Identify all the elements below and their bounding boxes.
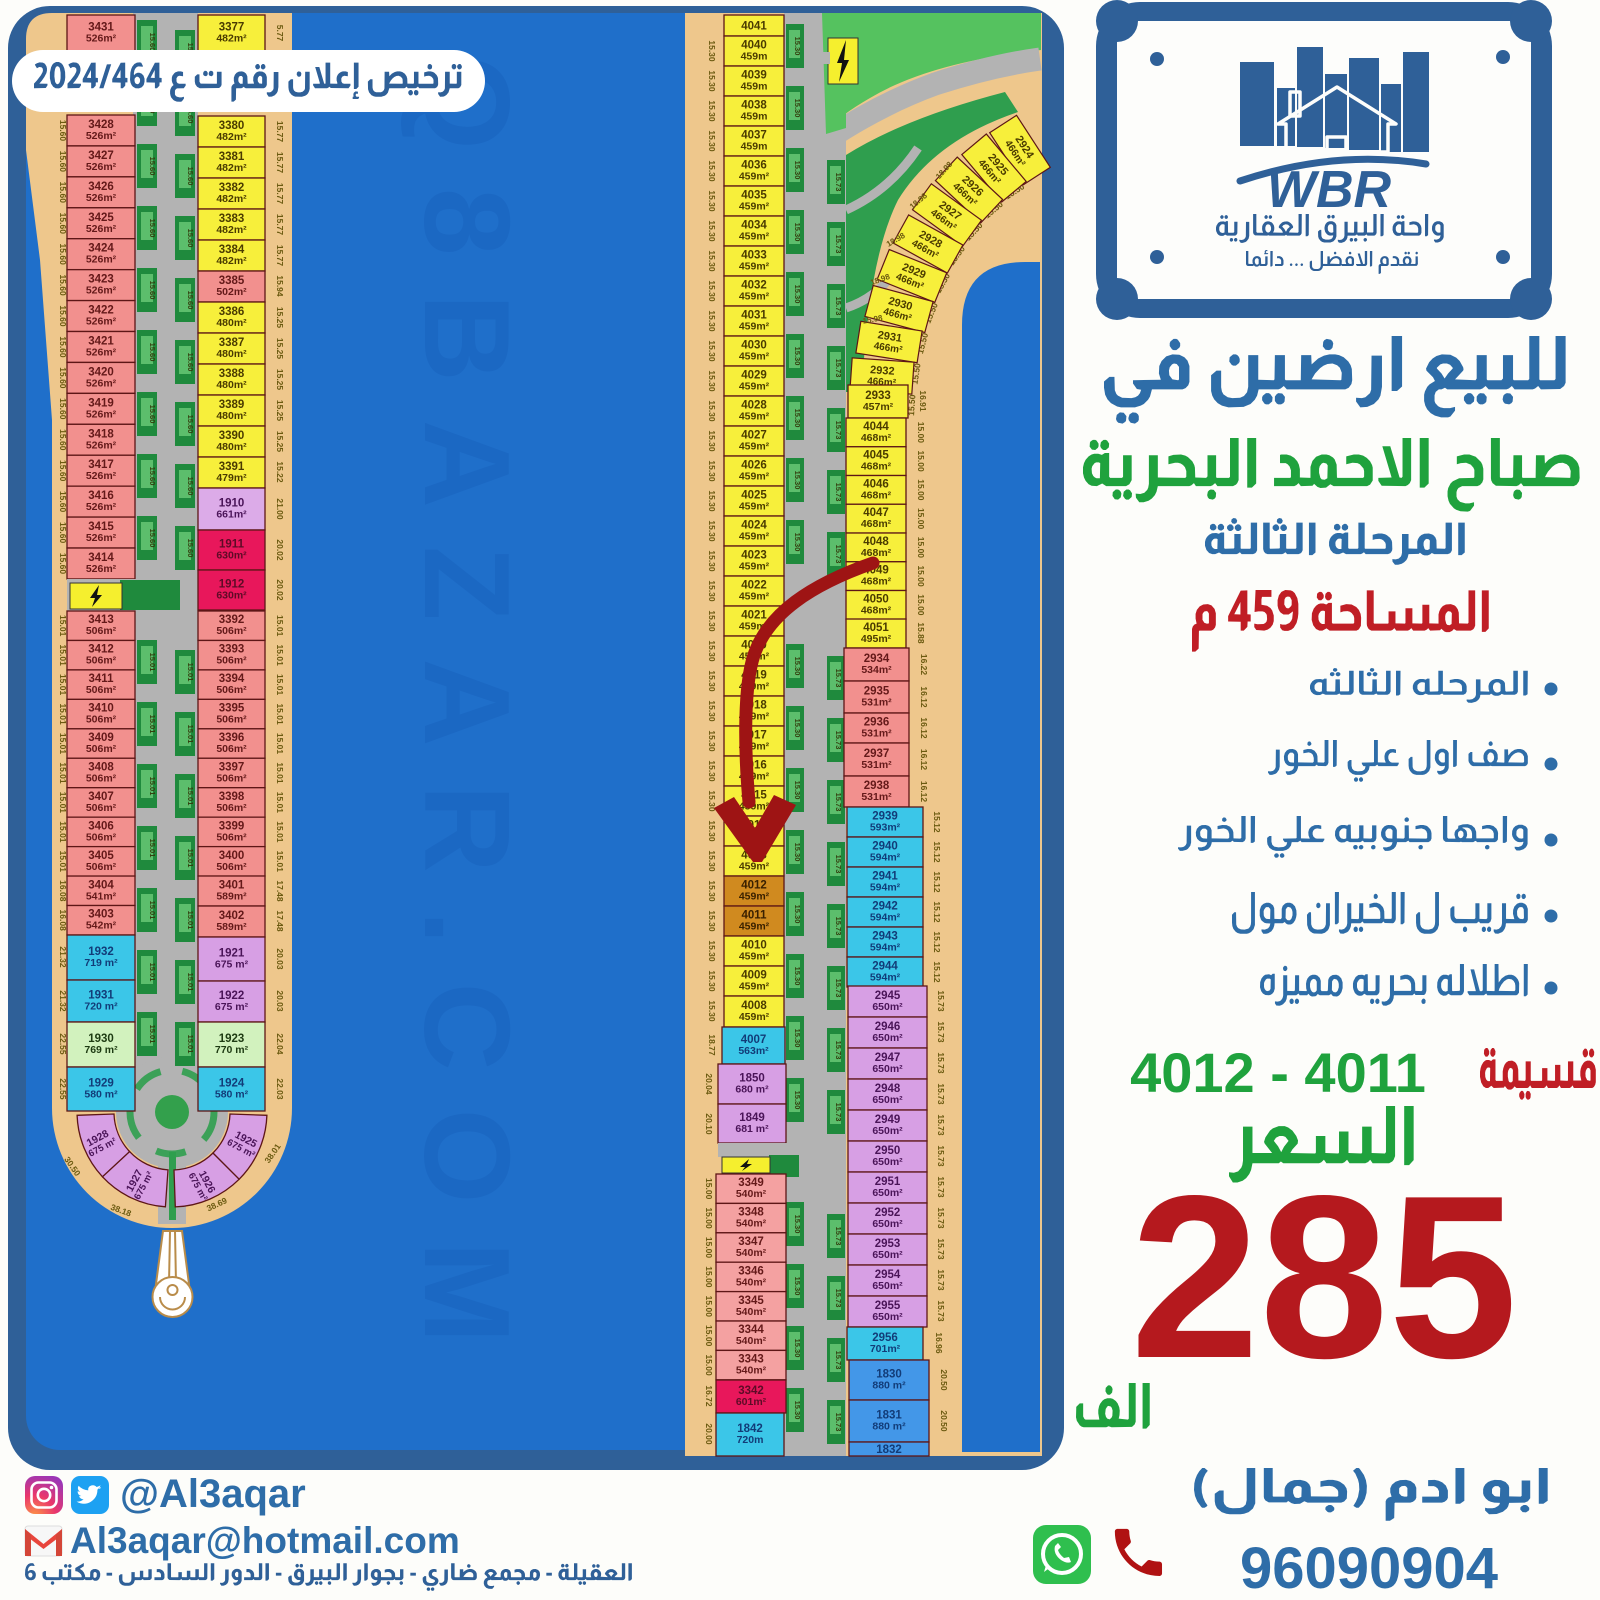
svg-text:601m²: 601m² xyxy=(736,1396,767,1408)
svg-text:15.73: 15.73 xyxy=(834,1227,843,1246)
svg-text:506m²: 506m² xyxy=(86,714,117,726)
svg-text:15.30: 15.30 xyxy=(793,905,802,924)
svg-text:15.01: 15.01 xyxy=(148,777,157,796)
svg-text:580 m²: 580 m² xyxy=(84,1089,118,1101)
svg-text:15.00: 15.00 xyxy=(704,1354,714,1376)
svg-text:4041: 4041 xyxy=(741,21,767,33)
svg-text:770 m²: 770 m² xyxy=(215,1044,249,1056)
svg-text:650m²: 650m² xyxy=(872,1001,903,1013)
svg-text:459m²: 459m² xyxy=(739,171,770,183)
svg-text:15.30: 15.30 xyxy=(707,1000,717,1022)
svg-text:540m²: 540m² xyxy=(736,1276,767,1288)
svg-text:15.30: 15.30 xyxy=(707,730,717,752)
svg-text:701m²: 701m² xyxy=(870,1343,901,1355)
svg-text:650m²: 650m² xyxy=(872,1063,903,1075)
svg-text:15.12: 15.12 xyxy=(932,871,942,893)
svg-text:482m²: 482m² xyxy=(216,33,247,45)
svg-text:526m²: 526m² xyxy=(86,563,117,575)
svg-text:17.48: 17.48 xyxy=(275,880,285,902)
svg-text:15.12: 15.12 xyxy=(932,901,942,923)
svg-text:15.01: 15.01 xyxy=(275,615,285,637)
svg-text:526m²: 526m² xyxy=(86,347,117,359)
svg-text:15.30: 15.30 xyxy=(707,130,717,152)
svg-text:15.30: 15.30 xyxy=(707,910,717,932)
svg-text:21.00: 21.00 xyxy=(275,498,285,520)
svg-text:16.91: 16.91 xyxy=(918,390,928,412)
svg-text:20.03: 20.03 xyxy=(275,990,285,1012)
svg-text:15.60: 15.60 xyxy=(58,553,68,575)
svg-text:15.73: 15.73 xyxy=(834,1413,843,1432)
svg-text:650m²: 650m² xyxy=(872,1032,903,1044)
svg-text:15.73: 15.73 xyxy=(834,359,843,378)
svg-text:15.30: 15.30 xyxy=(707,550,717,572)
svg-text:589m²: 589m² xyxy=(216,921,247,933)
svg-text:15.00: 15.00 xyxy=(916,565,926,587)
svg-text:15.77: 15.77 xyxy=(275,183,285,205)
svg-text:16.08: 16.08 xyxy=(58,880,68,902)
svg-text:15.30: 15.30 xyxy=(707,310,717,332)
svg-text:15.60: 15.60 xyxy=(148,343,157,362)
svg-text:459m²: 459m² xyxy=(739,891,770,903)
svg-text:650m²: 650m² xyxy=(872,1125,903,1137)
svg-text:15.01: 15.01 xyxy=(58,851,68,873)
svg-text:506m²: 506m² xyxy=(216,831,247,843)
svg-text:720m: 720m xyxy=(737,1434,764,1446)
svg-text:15.73: 15.73 xyxy=(834,1289,843,1308)
svg-text:880 m²: 880 m² xyxy=(872,1380,906,1392)
svg-text:15.30: 15.30 xyxy=(793,967,802,986)
svg-text:15.01: 15.01 xyxy=(58,674,68,696)
svg-text:20.10: 20.10 xyxy=(704,1113,714,1135)
svg-text:15.60: 15.60 xyxy=(58,336,68,358)
svg-text:15.25: 15.25 xyxy=(275,400,285,422)
svg-text:468m²: 468m² xyxy=(861,461,892,473)
svg-text:21.32: 21.32 xyxy=(58,946,68,968)
svg-text:594m²: 594m² xyxy=(870,912,901,924)
svg-text:15.01: 15.01 xyxy=(186,787,195,806)
svg-text:15.73: 15.73 xyxy=(834,1041,843,1060)
svg-text:15.01: 15.01 xyxy=(58,645,68,667)
svg-text:457m²: 457m² xyxy=(863,401,894,413)
svg-text:15.01: 15.01 xyxy=(275,703,285,725)
svg-text:526m²: 526m² xyxy=(86,532,117,544)
svg-text:15.60: 15.60 xyxy=(186,477,195,496)
svg-text:15.30: 15.30 xyxy=(707,460,717,482)
svg-text:650m²: 650m² xyxy=(872,1156,903,1168)
svg-text:506m²: 506m² xyxy=(86,773,117,785)
svg-text:15.01: 15.01 xyxy=(275,762,285,784)
svg-text:15.30: 15.30 xyxy=(793,1029,802,1048)
svg-text:15.01: 15.01 xyxy=(186,911,195,930)
svg-text:459m²: 459m² xyxy=(739,411,770,423)
svg-text:720 m²: 720 m² xyxy=(84,1001,118,1013)
svg-text:15.01: 15.01 xyxy=(58,762,68,784)
svg-text:15.25: 15.25 xyxy=(275,338,285,360)
svg-text:15.73: 15.73 xyxy=(834,1103,843,1122)
svg-text:480m²: 480m² xyxy=(216,410,247,422)
svg-text:506m²: 506m² xyxy=(216,655,247,667)
svg-text:15.77: 15.77 xyxy=(275,152,285,174)
svg-text:480m²: 480m² xyxy=(216,317,247,329)
svg-text:15.00: 15.00 xyxy=(704,1296,714,1318)
svg-text:15.73: 15.73 xyxy=(834,173,843,192)
svg-text:459m²: 459m² xyxy=(739,531,770,543)
svg-text:540m²: 540m² xyxy=(736,1306,767,1318)
svg-text:15.30: 15.30 xyxy=(793,99,802,118)
svg-text:15.73: 15.73 xyxy=(834,297,843,316)
svg-text:15.88: 15.88 xyxy=(916,622,926,644)
svg-text:15.30: 15.30 xyxy=(707,190,717,212)
svg-text:96090904: 96090904 xyxy=(1240,1536,1498,1600)
svg-text:15.60: 15.60 xyxy=(148,405,157,424)
svg-text:15.30: 15.30 xyxy=(707,670,717,692)
svg-text:506m²: 506m² xyxy=(216,773,247,785)
svg-text:15.30: 15.30 xyxy=(793,1401,802,1420)
svg-text:540m²: 540m² xyxy=(736,1247,767,1259)
svg-text:482m²: 482m² xyxy=(216,131,247,143)
svg-text:506m²: 506m² xyxy=(86,625,117,637)
svg-text:459m: 459m xyxy=(741,141,768,153)
svg-text:563m²: 563m² xyxy=(738,1045,769,1057)
svg-text:15.73: 15.73 xyxy=(834,235,843,254)
svg-text:15.30: 15.30 xyxy=(793,781,802,800)
svg-text:526m²: 526m² xyxy=(86,316,117,328)
svg-text:495m²: 495m² xyxy=(861,633,892,645)
svg-text:15.73: 15.73 xyxy=(834,979,843,998)
svg-text:15.00: 15.00 xyxy=(704,1266,714,1288)
svg-text:482m²: 482m² xyxy=(216,193,247,205)
svg-text:468m²: 468m² xyxy=(861,547,892,559)
svg-text:15.00: 15.00 xyxy=(704,1207,714,1229)
svg-text:459m²: 459m² xyxy=(739,201,770,213)
svg-text:480m²: 480m² xyxy=(216,441,247,453)
svg-text:459m²: 459m² xyxy=(739,951,770,963)
svg-text:15.73: 15.73 xyxy=(834,1351,843,1370)
svg-text:540m²: 540m² xyxy=(736,1188,767,1200)
svg-text:459m²: 459m² xyxy=(739,561,770,573)
svg-text:15.77: 15.77 xyxy=(275,214,285,236)
svg-text:650m²: 650m² xyxy=(872,1094,903,1106)
svg-text:15.00: 15.00 xyxy=(916,422,926,444)
svg-text:20.50: 20.50 xyxy=(939,1410,949,1432)
svg-text:15.60: 15.60 xyxy=(58,213,68,235)
svg-text:15.60: 15.60 xyxy=(58,151,68,173)
svg-text:15.30: 15.30 xyxy=(707,70,717,92)
svg-text:15.30: 15.30 xyxy=(793,1277,802,1296)
svg-text:526m²: 526m² xyxy=(86,192,117,204)
svg-text:506m²: 506m² xyxy=(86,861,117,873)
svg-text:15.30: 15.30 xyxy=(707,220,717,242)
svg-text:15.00: 15.00 xyxy=(916,450,926,472)
svg-text:15.30: 15.30 xyxy=(793,285,802,304)
svg-text:15.01: 15.01 xyxy=(275,792,285,814)
svg-text:15.60: 15.60 xyxy=(148,529,157,548)
svg-text:459m²: 459m² xyxy=(739,441,770,453)
svg-text:650m²: 650m² xyxy=(872,1249,903,1261)
svg-text:WBR: WBR xyxy=(1267,161,1392,219)
svg-text:15.30: 15.30 xyxy=(707,610,717,632)
svg-text:15.60: 15.60 xyxy=(148,467,157,486)
svg-text:15.12: 15.12 xyxy=(932,811,942,833)
svg-text:15.01: 15.01 xyxy=(148,963,157,982)
svg-text:459m²: 459m² xyxy=(739,1011,770,1023)
svg-text:15.30: 15.30 xyxy=(707,850,717,872)
svg-text:468m²: 468m² xyxy=(861,518,892,530)
svg-text:675 m²: 675 m² xyxy=(215,1001,249,1013)
svg-text:15.22: 15.22 xyxy=(275,461,285,483)
svg-text:15.73: 15.73 xyxy=(936,1114,946,1136)
svg-text:506m²: 506m² xyxy=(216,743,247,755)
svg-text:15.30: 15.30 xyxy=(793,719,802,738)
svg-text:16.12: 16.12 xyxy=(919,686,929,708)
svg-text:15.30: 15.30 xyxy=(707,430,717,452)
svg-text:15.30: 15.30 xyxy=(707,520,717,542)
svg-text:15.73: 15.73 xyxy=(834,421,843,440)
svg-text:15.01: 15.01 xyxy=(186,1035,195,1054)
svg-text:15.12: 15.12 xyxy=(932,841,942,863)
svg-text:22.03: 22.03 xyxy=(275,1078,285,1100)
svg-text:630m²: 630m² xyxy=(216,550,247,562)
svg-text:650m²: 650m² xyxy=(872,1187,903,1199)
svg-text:526m²: 526m² xyxy=(86,470,117,482)
svg-text:526m²: 526m² xyxy=(86,130,117,142)
svg-text:594m²: 594m² xyxy=(870,852,901,864)
svg-text:15.01: 15.01 xyxy=(148,901,157,920)
svg-text:534m²: 534m² xyxy=(861,664,892,676)
svg-text:531m²: 531m² xyxy=(861,697,892,709)
svg-text:526m²: 526m² xyxy=(86,285,117,297)
svg-text:506m²: 506m² xyxy=(86,831,117,843)
svg-text:15.25: 15.25 xyxy=(275,307,285,329)
svg-text:15.60: 15.60 xyxy=(186,291,195,310)
svg-text:593m²: 593m² xyxy=(870,822,901,834)
svg-text:16.22: 16.22 xyxy=(919,654,929,676)
svg-text:15.30: 15.30 xyxy=(793,161,802,180)
svg-text:285: 285 xyxy=(1130,1148,1517,1407)
svg-text:15.01: 15.01 xyxy=(275,645,285,667)
svg-text:459m²: 459m² xyxy=(739,981,770,993)
svg-text:482m²: 482m² xyxy=(216,224,247,236)
svg-text:15.30: 15.30 xyxy=(707,370,717,392)
svg-text:15.77: 15.77 xyxy=(275,121,285,143)
svg-text:Al3aqar@hotmail.com: Al3aqar@hotmail.com xyxy=(70,1520,460,1561)
svg-text:15.73: 15.73 xyxy=(936,1052,946,1074)
svg-text:650m²: 650m² xyxy=(872,1218,903,1230)
svg-text:482m²: 482m² xyxy=(216,162,247,174)
svg-text:502m²: 502m² xyxy=(216,286,247,298)
svg-text:650m²: 650m² xyxy=(872,1311,903,1323)
svg-text:15.60: 15.60 xyxy=(58,398,68,420)
svg-text:526m²: 526m² xyxy=(86,223,117,235)
svg-text:506m²: 506m² xyxy=(216,861,247,873)
svg-text:15.30: 15.30 xyxy=(707,880,717,902)
svg-text:15.73: 15.73 xyxy=(936,1021,946,1043)
svg-text:15.01: 15.01 xyxy=(186,725,195,744)
svg-text:15.60: 15.60 xyxy=(58,367,68,389)
svg-text:526m²: 526m² xyxy=(86,439,117,451)
svg-text:15.01: 15.01 xyxy=(275,821,285,843)
svg-text:5.77: 5.77 xyxy=(275,25,285,42)
svg-text:459m²: 459m² xyxy=(739,231,770,243)
svg-text:15.60: 15.60 xyxy=(58,274,68,296)
svg-text:459m: 459m xyxy=(741,111,768,123)
svg-text:680 m²: 680 m² xyxy=(735,1084,769,1096)
svg-text:15.60: 15.60 xyxy=(148,157,157,176)
svg-text:15.73: 15.73 xyxy=(936,1300,946,1322)
svg-text:526m²: 526m² xyxy=(86,377,117,389)
svg-text:15.12: 15.12 xyxy=(932,961,942,983)
svg-text:20.00: 20.00 xyxy=(704,1423,714,1445)
svg-text:15.30: 15.30 xyxy=(793,843,802,862)
svg-text:15.60: 15.60 xyxy=(186,229,195,248)
svg-text:468m²: 468m² xyxy=(861,604,892,616)
svg-text:506m²: 506m² xyxy=(216,714,247,726)
svg-text:15.01: 15.01 xyxy=(148,1025,157,1044)
svg-text:468m²: 468m² xyxy=(861,489,892,501)
svg-text:459m²: 459m² xyxy=(739,261,770,273)
svg-text:15.73: 15.73 xyxy=(936,990,946,1012)
svg-text:589m²: 589m² xyxy=(216,891,247,903)
svg-text:480m²: 480m² xyxy=(216,348,247,360)
svg-text:681 m²: 681 m² xyxy=(735,1123,769,1135)
svg-text:15.77: 15.77 xyxy=(275,245,285,267)
svg-text:15.60: 15.60 xyxy=(58,244,68,266)
svg-text:15.60: 15.60 xyxy=(58,182,68,204)
svg-text:15.73: 15.73 xyxy=(834,669,843,688)
svg-text:15.00: 15.00 xyxy=(704,1237,714,1259)
svg-text:526m²: 526m² xyxy=(86,408,117,420)
svg-text:15.30: 15.30 xyxy=(793,1091,802,1110)
svg-text:15.01: 15.01 xyxy=(275,733,285,755)
svg-text:15.01: 15.01 xyxy=(58,615,68,637)
svg-text:15.00: 15.00 xyxy=(704,1325,714,1347)
svg-text:17.48: 17.48 xyxy=(275,910,285,932)
svg-text:15.30: 15.30 xyxy=(793,533,802,552)
svg-text:15.73: 15.73 xyxy=(834,793,843,812)
svg-text:482m²: 482m² xyxy=(216,255,247,267)
svg-text:15.30: 15.30 xyxy=(793,409,802,428)
svg-text:15.30: 15.30 xyxy=(707,40,717,62)
svg-text:675 m²: 675 m² xyxy=(215,959,249,971)
svg-text:769 m²: 769 m² xyxy=(84,1044,118,1056)
svg-text:20.02: 20.02 xyxy=(275,579,285,601)
svg-text:506m²: 506m² xyxy=(86,802,117,814)
svg-text:15.60: 15.60 xyxy=(58,491,68,513)
svg-text:16.12: 16.12 xyxy=(919,717,929,739)
svg-text:459m²: 459m² xyxy=(739,921,770,933)
svg-text:459m²: 459m² xyxy=(739,321,770,333)
svg-text:506m²: 506m² xyxy=(86,743,117,755)
svg-text:16.96: 16.96 xyxy=(934,1332,944,1354)
svg-text:15.01: 15.01 xyxy=(275,851,285,873)
svg-text:15.30: 15.30 xyxy=(793,1215,802,1234)
svg-text:15.30: 15.30 xyxy=(707,400,717,422)
svg-text:15.60: 15.60 xyxy=(148,219,157,238)
svg-text:459m: 459m xyxy=(741,81,768,93)
svg-text:20.02: 20.02 xyxy=(275,539,285,561)
svg-text:15.01: 15.01 xyxy=(58,703,68,725)
svg-text:15.30: 15.30 xyxy=(793,657,802,676)
svg-text:459m²: 459m² xyxy=(739,471,770,483)
svg-text:15.01: 15.01 xyxy=(186,849,195,868)
svg-text:15.94: 15.94 xyxy=(275,275,285,297)
svg-text:15.30: 15.30 xyxy=(707,490,717,512)
svg-text:15.30: 15.30 xyxy=(793,471,802,490)
svg-text:15.00: 15.00 xyxy=(704,1178,714,1200)
svg-text:15.60: 15.60 xyxy=(58,305,68,327)
svg-text:15.30: 15.30 xyxy=(707,940,717,962)
svg-text:15.01: 15.01 xyxy=(275,674,285,696)
svg-text:526m²: 526m² xyxy=(86,254,117,266)
svg-text:15.60: 15.60 xyxy=(186,353,195,372)
svg-text:15.00: 15.00 xyxy=(916,508,926,530)
svg-text:526m²: 526m² xyxy=(86,501,117,513)
svg-text:459m²: 459m² xyxy=(739,501,770,513)
svg-text:459m²: 459m² xyxy=(739,861,770,873)
svg-text:15.30: 15.30 xyxy=(707,250,717,272)
svg-text:22.55: 22.55 xyxy=(58,1078,68,1100)
svg-text:506m²: 506m² xyxy=(216,625,247,637)
svg-text:16.12: 16.12 xyxy=(919,781,929,803)
svg-text:580 m²: 580 m² xyxy=(215,1089,249,1101)
svg-text:16.08: 16.08 xyxy=(58,910,68,932)
svg-text:15.30: 15.30 xyxy=(707,160,717,182)
svg-text:15.30: 15.30 xyxy=(707,280,717,302)
svg-text:506m²: 506m² xyxy=(216,802,247,814)
svg-text:526m²: 526m² xyxy=(86,33,117,45)
svg-text:594m²: 594m² xyxy=(870,972,901,984)
svg-text:540m²: 540m² xyxy=(736,1218,767,1230)
svg-text:15.60: 15.60 xyxy=(148,281,157,300)
svg-text:540m²: 540m² xyxy=(736,1365,767,1377)
svg-text:15.60: 15.60 xyxy=(186,415,195,434)
svg-text:Q8BAZAR.COM: Q8BAZAR.COM xyxy=(399,55,535,1381)
svg-text:15.30: 15.30 xyxy=(707,700,717,722)
svg-text:15.00: 15.00 xyxy=(916,594,926,616)
svg-text:15.60: 15.60 xyxy=(58,120,68,142)
svg-text:719 m²: 719 m² xyxy=(84,957,118,969)
svg-text:20.03: 20.03 xyxy=(275,948,285,970)
svg-text:15.73: 15.73 xyxy=(834,545,843,564)
svg-text:15.01: 15.01 xyxy=(186,663,195,682)
svg-text:526m²: 526m² xyxy=(86,161,117,173)
svg-text:15.73: 15.73 xyxy=(834,731,843,750)
svg-text:15.30: 15.30 xyxy=(793,37,802,56)
svg-text:594m²: 594m² xyxy=(870,882,901,894)
svg-text:15.00: 15.00 xyxy=(916,537,926,559)
svg-text:15.60: 15.60 xyxy=(186,167,195,186)
svg-text:15.01: 15.01 xyxy=(58,733,68,755)
svg-text:468m²: 468m² xyxy=(861,576,892,588)
svg-text:531m²: 531m² xyxy=(861,759,892,771)
svg-text:1832: 1832 xyxy=(876,1444,902,1456)
svg-text:459m²: 459m² xyxy=(739,291,770,303)
svg-text:15.30: 15.30 xyxy=(793,347,802,366)
svg-text:459m²: 459m² xyxy=(739,351,770,363)
svg-text:15.30: 15.30 xyxy=(707,640,717,662)
svg-text:506m²: 506m² xyxy=(216,684,247,696)
svg-text:15.73: 15.73 xyxy=(834,483,843,502)
svg-text:459m²: 459m² xyxy=(739,381,770,393)
svg-text:880 m²: 880 m² xyxy=(872,1421,906,1433)
svg-text:630m²: 630m² xyxy=(216,590,247,602)
svg-text:506m²: 506m² xyxy=(86,655,117,667)
svg-text:531m²: 531m² xyxy=(861,791,892,803)
svg-text:459m: 459m xyxy=(741,51,768,63)
svg-text:20.04: 20.04 xyxy=(704,1073,714,1095)
svg-text:531m²: 531m² xyxy=(861,728,892,740)
svg-text:15.01: 15.01 xyxy=(148,715,157,734)
